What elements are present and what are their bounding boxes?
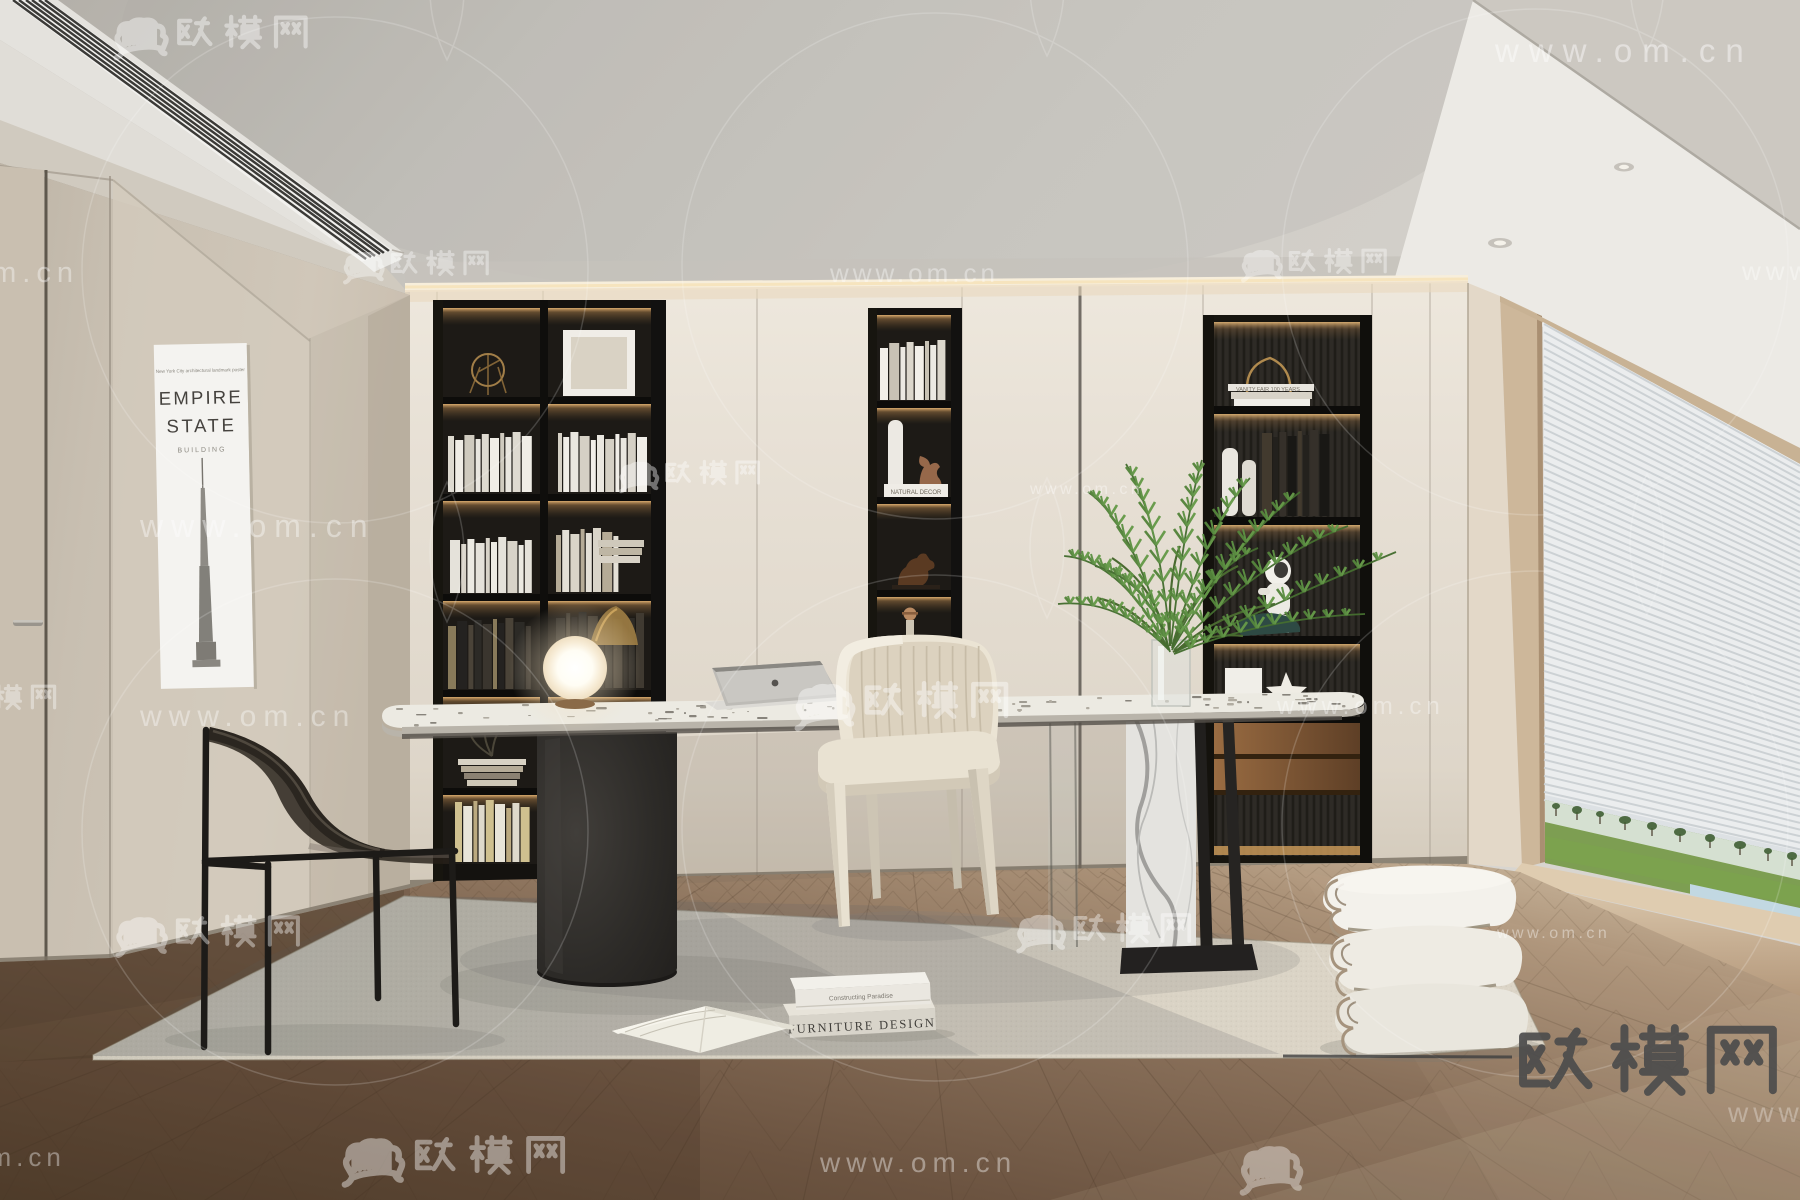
svg-text:www.om.cn: www.om.cn (1029, 481, 1143, 498)
svg-text:NATURAL DECOR: NATURAL DECOR (891, 490, 942, 496)
svg-text:STATE: STATE (166, 414, 236, 436)
svg-text:www.om.cn: www.om.cn (829, 258, 999, 288)
svg-text:www: www (1727, 1097, 1800, 1128)
svg-text:www.om.cn: www.om.cn (139, 700, 356, 733)
svg-text:www.om.cn: www.om.cn (1494, 32, 1754, 69)
svg-text:EMPIRE: EMPIRE (159, 386, 244, 409)
svg-text:om.cn: om.cn (0, 1142, 66, 1172)
svg-text:BUILDING: BUILDING (177, 446, 226, 454)
svg-text:www.om.cn: www.om.cn (139, 508, 376, 544)
svg-text:om.cn: om.cn (0, 257, 79, 289)
svg-text:www.om.cn: www.om.cn (819, 1147, 1017, 1178)
svg-text:www: www (1741, 256, 1800, 286)
svg-text:www.om.cn: www.om.cn (1276, 693, 1445, 720)
svg-text:VANITY FAIR 100 YEARS: VANITY FAIR 100 YEARS (1236, 387, 1300, 393)
svg-text:www.om.cn: www.om.cn (1496, 925, 1610, 942)
